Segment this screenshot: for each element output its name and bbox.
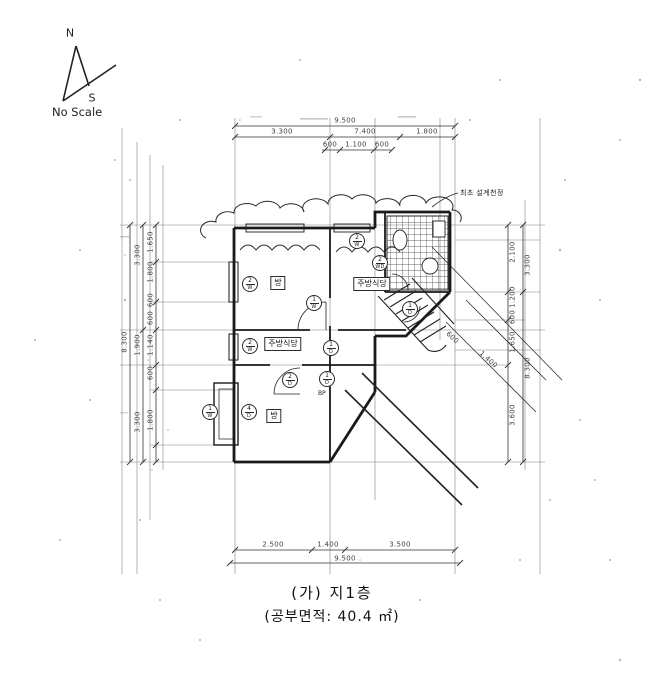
dim-top-seg3: 1.800 bbox=[416, 129, 438, 136]
room-label-upper-left: 방 bbox=[270, 276, 285, 290]
opening-tag: 2W bbox=[242, 338, 258, 354]
annotation-leader bbox=[432, 193, 458, 207]
opening-tag: 1W bbox=[306, 295, 322, 311]
drawing-caption: (가) 지1층 (공부면적: 40.4 ㎡) bbox=[0, 582, 664, 626]
scan-noise bbox=[34, 59, 641, 661]
compass-north-label: N bbox=[66, 27, 74, 40]
revision-annotation: 최초 설계천정 bbox=[460, 188, 504, 198]
opening-tag: 1D bbox=[323, 340, 339, 356]
dim-top-seg1: 3.300 bbox=[271, 129, 293, 136]
room-label-kitchen-middle: 주방식당 bbox=[264, 337, 301, 351]
opening-tag: 2WD bbox=[372, 255, 388, 271]
dim-bottom-seg1: 2.500 bbox=[262, 542, 284, 549]
dim-left-in7: 1.800 bbox=[148, 409, 155, 431]
opening-tag: 2W bbox=[349, 233, 365, 249]
dim-left-in6: 600 bbox=[148, 366, 155, 380]
opening-tag: 4D bbox=[241, 404, 257, 420]
dim-right-in5: 3.600 bbox=[510, 404, 517, 426]
dim-top-total: 9.500 bbox=[334, 118, 356, 125]
dim-right-in1: 2.100 bbox=[510, 241, 517, 263]
dim-left-in5: 1.140 bbox=[148, 334, 155, 356]
dim-left-mid2: 1.900 bbox=[135, 334, 142, 356]
opening-tag: 2D bbox=[282, 372, 298, 388]
dim-left-mid3: 3.300 bbox=[135, 411, 142, 433]
compass-south-label: S bbox=[89, 92, 96, 105]
sink-fixture bbox=[422, 258, 438, 274]
dim-bottom-total: 9.500 bbox=[334, 556, 356, 563]
dim-right-in4: 1.650 bbox=[510, 331, 517, 353]
room-label-kitchen-upper: 주방식당 bbox=[353, 277, 390, 291]
dim-left-in3: 600 bbox=[148, 293, 155, 307]
dim-right-in2: 1.200 bbox=[510, 286, 517, 308]
dim-left-mid1: 3.300 bbox=[135, 244, 142, 266]
dim-right-in3: 600 bbox=[510, 310, 517, 324]
tank-fixture bbox=[433, 221, 445, 237]
no-scale-label: No Scale bbox=[52, 105, 102, 119]
dim-left-in4: 600 bbox=[148, 311, 155, 325]
dim-left-in2: 1.800 bbox=[148, 261, 155, 283]
bp-label: BP bbox=[318, 390, 326, 397]
windows bbox=[214, 224, 370, 445]
caption-area: (공부면적: 40.4 ㎡) bbox=[0, 606, 664, 626]
opening-tag: 1W bbox=[202, 404, 218, 420]
dim-top-seg2: 7.400 bbox=[354, 129, 376, 136]
opening-tag: 2W bbox=[242, 276, 258, 292]
dim-left-total: 8.300 bbox=[122, 331, 129, 353]
toilet-fixture bbox=[393, 230, 407, 250]
dim-bottom-seg2: 1.400 bbox=[317, 542, 339, 549]
room-label-lower: 방 bbox=[266, 409, 281, 423]
dim-right-out1: 3.300 bbox=[525, 254, 532, 276]
dim-top-sub2: 1.100 bbox=[345, 142, 367, 149]
dim-top-sub1: 600 bbox=[323, 142, 337, 149]
dim-right-out2: 8.300 bbox=[525, 357, 532, 379]
caption-title: (가) 지1층 bbox=[0, 582, 664, 603]
dim-top-sub3: 600 bbox=[375, 142, 389, 149]
dim-left-in1: 1.650 bbox=[148, 231, 155, 253]
opening-tag: 1D bbox=[319, 371, 335, 387]
dim-bottom-seg3: 3.500 bbox=[389, 542, 411, 549]
bathroom bbox=[387, 216, 448, 290]
opening-tag: 1D bbox=[402, 301, 418, 317]
scanned-floorplan-page: N S No Scale 9.500 3.300 7.400 1.800 600… bbox=[0, 0, 664, 700]
